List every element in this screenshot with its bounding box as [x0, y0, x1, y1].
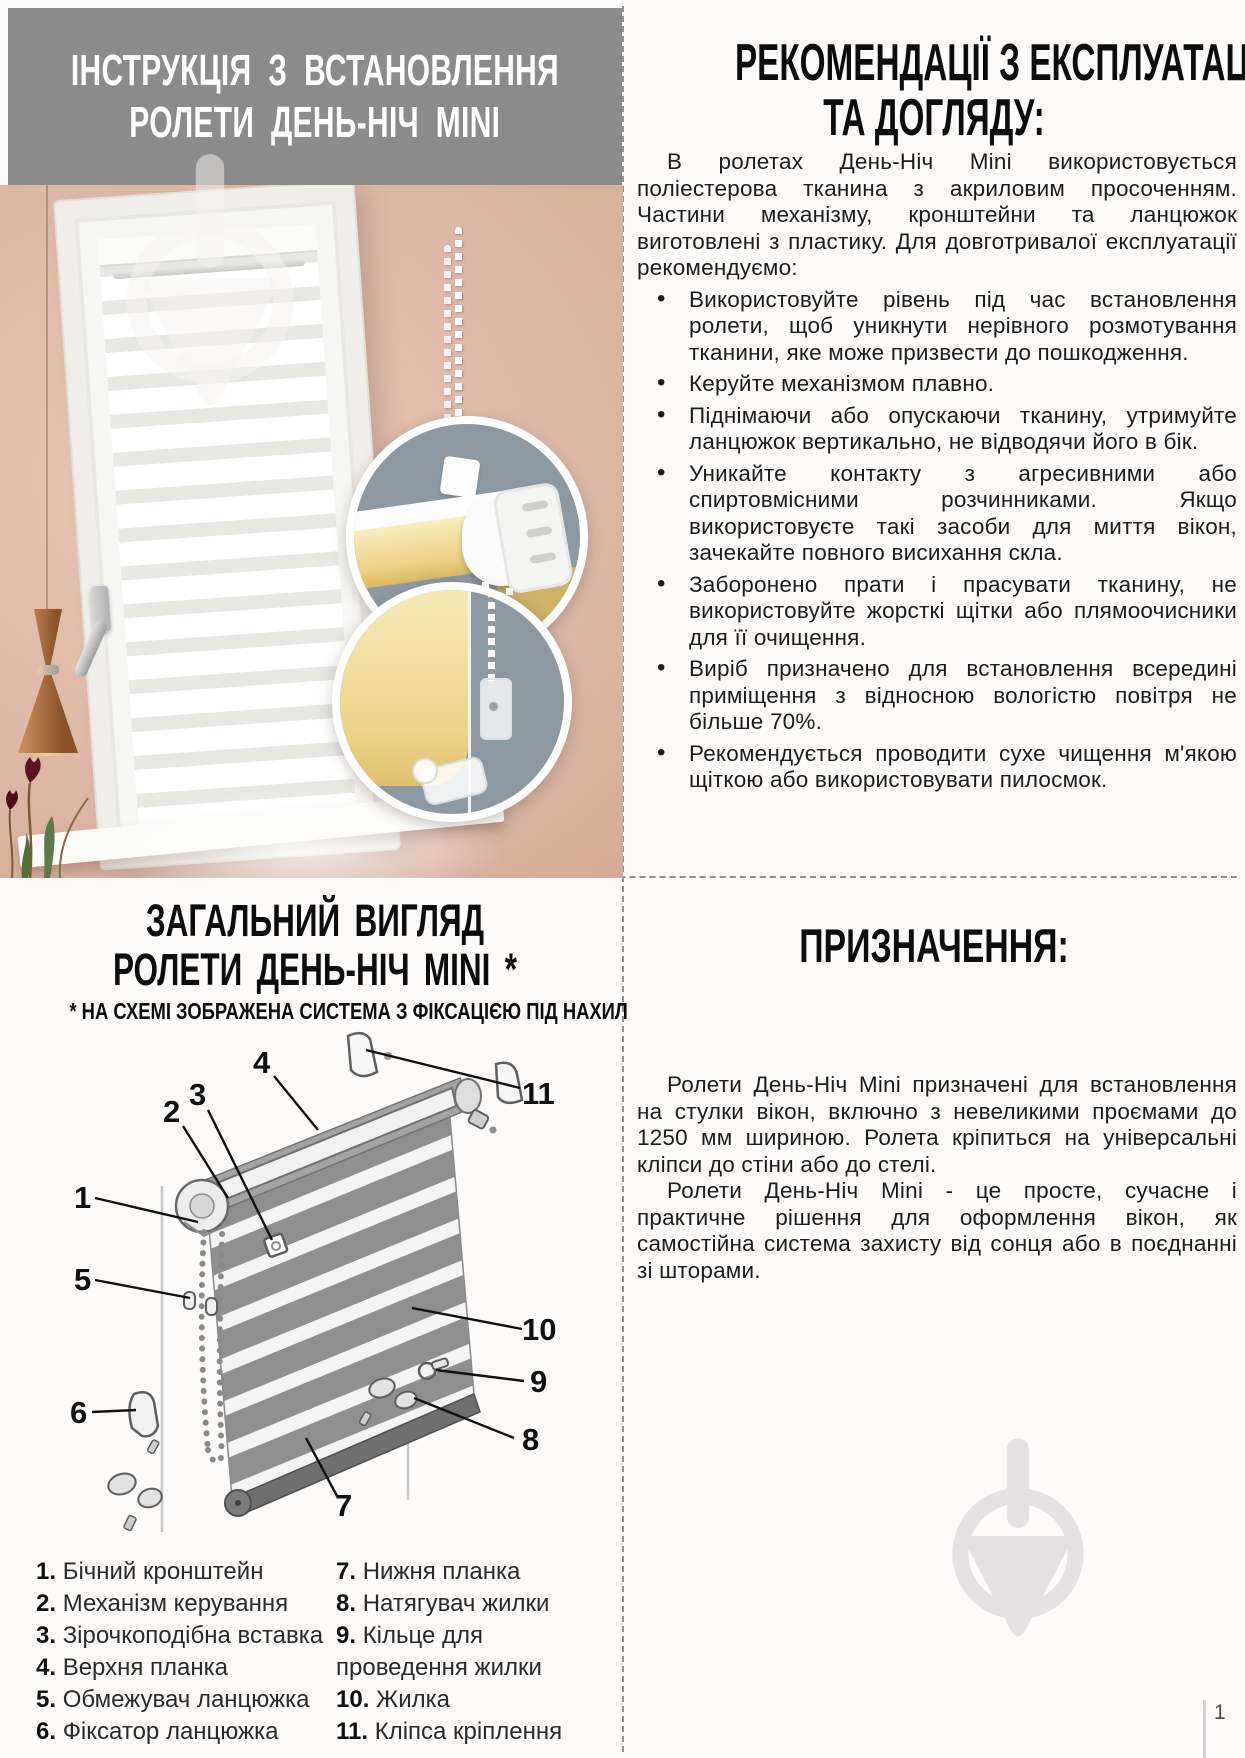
- callout-8: 8: [522, 1422, 539, 1457]
- part-item: 9. Кільце для проведення жилки: [336, 1620, 586, 1684]
- part-item: 7. Нижня планка: [336, 1556, 586, 1588]
- recommendations-title-line1: РЕКОМЕНДАЦІЇ З ЕКСПЛУАТАЦІЇ: [735, 36, 1133, 91]
- parts-list-left: 1. Бічний кронштейн 2. Механізм керуванн…: [36, 1556, 336, 1748]
- recommendation-item: Виріб призначено для встановлення всеред…: [689, 656, 1237, 736]
- callout-6: 6: [70, 1395, 87, 1430]
- overview-title-line1: ЗАГАЛЬНИЙ ВИГЛЯД: [100, 896, 530, 945]
- part-item: 2. Механізм керування: [36, 1588, 336, 1620]
- overview-title: ЗАГАЛЬНИЙ ВИГЛЯД РОЛЕТИ ДЕНЬ-НІЧ MINI * …: [8, 896, 622, 1026]
- fixator-inset-photo: [332, 582, 572, 822]
- callout-7: 7: [335, 1488, 352, 1523]
- callout-5: 5: [74, 1262, 91, 1297]
- part-item: 8. Натягувач жилки: [336, 1588, 586, 1620]
- purpose-title: ПРИЗНАЧЕННЯ:: [623, 918, 1245, 973]
- callout-3: 3: [189, 1077, 206, 1112]
- part-item: 1. Бічний кронштейн: [36, 1556, 336, 1588]
- purpose-paragraph-2: Ролети День-Ніч Mini - це просте, сучасн…: [637, 1178, 1237, 1284]
- part-item: 6. Фіксатор ланцюжка: [36, 1716, 336, 1748]
- part-item: 11. Кліпса кріплення: [336, 1716, 586, 1748]
- callout-9: 9: [530, 1364, 547, 1399]
- recommendation-item: Використовуйте рівень під час встановлен…: [689, 287, 1237, 367]
- product-photo: [0, 185, 623, 878]
- purpose-paragraph-1: Ролети День-Ніч Mini призначені для вста…: [637, 1072, 1237, 1178]
- callout-2: 2: [163, 1094, 180, 1129]
- part-item: 3. Зірочкоподібна вставка: [36, 1620, 336, 1652]
- bead-chain: [488, 590, 495, 682]
- recommendation-item: Рекомендується проводити сухе чищення м'…: [689, 741, 1237, 794]
- bracket-tab: [440, 456, 481, 499]
- install-title-line1: ІНСТРУКЦІЯ З ВСТАНОВЛЕННЯ: [71, 45, 559, 97]
- recommendation-item: Керуйте механізмом плавно.: [689, 371, 1237, 398]
- parts-list-right: 7. Нижня планка 8. Натягувач жилки 9. Кі…: [336, 1556, 586, 1748]
- page-number-rule: [1203, 1700, 1206, 1758]
- instruction-page: ІНСТРУКЦІЯ З ВСТАНОВЛЕННЯ РОЛЕТИ ДЕНЬ-НІ…: [0, 0, 1245, 1758]
- part-item: 4. Верхня планка: [36, 1652, 336, 1684]
- recommendations-body: В ролетах День-Ніч Mini використовується…: [637, 149, 1237, 794]
- install-header-band: ІНСТРУКЦІЯ З ВСТАНОВЛЕННЯ РОЛЕТИ ДЕНЬ-НІ…: [8, 8, 622, 185]
- recommendations-list: Використовуйте рівень під час встановлен…: [637, 287, 1237, 794]
- install-title-line2: РОЛЕТИ ДЕНЬ-НІЧ MINI: [129, 97, 500, 149]
- recommendation-item: Уникайте контакту з агресивними або спир…: [689, 461, 1237, 567]
- overview-title-line2: РОЛЕТИ ДЕНЬ-НІЧ MINI *: [100, 945, 530, 994]
- bead-chain: [202, 1232, 208, 1450]
- blind-diagram: 1 2 3 4 5 6 7 8 9 10 11: [50, 1026, 565, 1556]
- part-item: 5. Обмежувач ланцюжка: [36, 1684, 336, 1716]
- callout-11: 11: [522, 1076, 555, 1111]
- fastener-cylinder: [106, 1470, 139, 1498]
- mount-bracket-top: [348, 1033, 377, 1076]
- roll-end-cap: [455, 1079, 481, 1113]
- chain-limiter: [184, 1292, 195, 1309]
- callout-4: 4: [253, 1045, 271, 1080]
- callout-10: 10: [522, 1312, 556, 1347]
- recommendation-item: Піднімаючи або опускаючи тканину, утриму…: [689, 403, 1237, 456]
- left-lamp-wire: [46, 185, 48, 609]
- page-number: 1: [1214, 1701, 1226, 1725]
- recommendation-item: Заборонено прати і прасувати тканину, не…: [689, 572, 1237, 652]
- callout-1: 1: [74, 1180, 91, 1215]
- purpose-body: Ролети День-Ніч Mini призначені для вста…: [637, 1072, 1237, 1284]
- part-item: 10. Жилка: [336, 1684, 586, 1716]
- watermark-logo-corner: [938, 1432, 1098, 1640]
- recommendations-title-line2: ТА ДОГЛЯДУ:: [735, 91, 1133, 146]
- recommendations-title: РЕКОМЕНДАЦІЇ З ЕКСПЛУАТАЦІЇ ТА ДОГЛЯДУ:: [623, 36, 1245, 146]
- overview-note: * НА СХЕМІ ЗОБРАЖЕНА СИСТЕМА З ФІКСАЦІЄЮ…: [69, 996, 560, 1026]
- recommendations-intro: В ролетах День-Ніч Mini використовується…: [637, 149, 1237, 282]
- chain-fixator: [129, 1392, 158, 1436]
- yellow-fabric-panel: [340, 590, 468, 786]
